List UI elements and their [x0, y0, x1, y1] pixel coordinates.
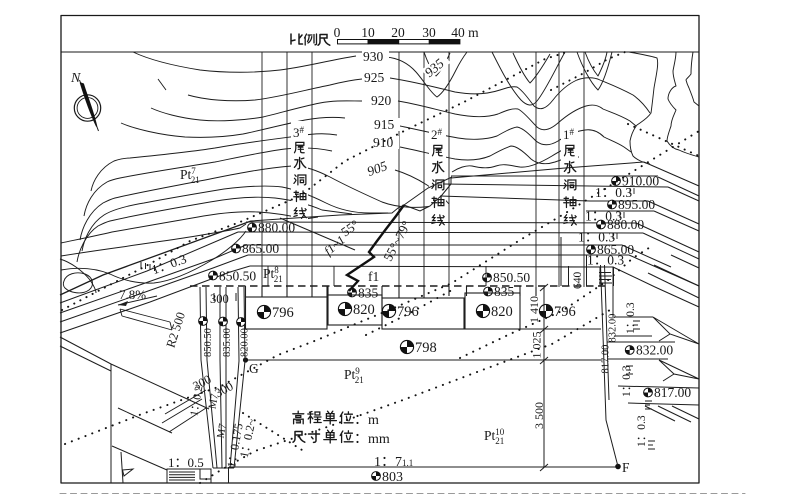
svg-text:20: 20 — [391, 25, 405, 40]
svg-text:798: 798 — [415, 340, 437, 356]
svg-text:895.00: 895.00 — [618, 197, 655, 212]
svg-text:640: 640 — [572, 272, 584, 290]
svg-text:832.00: 832.00 — [636, 343, 673, 358]
svg-text:850.50: 850.50 — [203, 328, 214, 357]
svg-text:820: 820 — [491, 304, 513, 320]
svg-text:835: 835 — [494, 284, 515, 299]
svg-text:300: 300 — [210, 292, 229, 306]
svg-text:1：0.3: 1：0.3 — [636, 415, 648, 447]
svg-text:1 410: 1 410 — [527, 296, 541, 323]
svg-text:920: 920 — [371, 93, 392, 108]
svg-text:835.00: 835.00 — [222, 328, 233, 357]
svg-text:3 500: 3 500 — [532, 402, 546, 429]
svg-text:1：71.1: 1：71.1 — [374, 455, 413, 470]
svg-text:1：0.3: 1：0.3 — [621, 365, 633, 397]
svg-text:1 025: 1 025 — [530, 332, 544, 359]
svg-text:：m: ：m — [354, 413, 379, 428]
svg-text:930: 930 — [363, 49, 384, 64]
svg-text:817.00: 817.00 — [654, 385, 691, 400]
svg-text:796: 796 — [554, 304, 576, 320]
svg-text:N: N — [70, 71, 81, 86]
svg-text:30: 30 — [422, 25, 436, 40]
svg-text:820: 820 — [353, 302, 375, 318]
svg-text:915: 915 — [374, 117, 395, 132]
svg-text:0: 0 — [334, 25, 341, 40]
svg-text:10: 10 — [361, 25, 375, 40]
svg-text:925: 925 — [364, 70, 385, 85]
svg-text:850.50: 850.50 — [219, 269, 256, 284]
svg-text:820.00: 820.00 — [240, 328, 251, 357]
svg-text:1：0.3: 1：0.3 — [587, 253, 624, 268]
svg-text:796: 796 — [272, 305, 294, 321]
svg-text:F: F — [622, 460, 630, 475]
svg-text:817.00: 817.00 — [601, 345, 612, 374]
svg-text:1：0.5: 1：0.5 — [168, 455, 204, 470]
svg-text:803: 803 — [382, 470, 403, 485]
svg-text:f1: f1 — [368, 269, 379, 284]
svg-text:1：0.3: 1：0.3 — [625, 302, 637, 334]
svg-text:40 m: 40 m — [451, 25, 479, 40]
svg-text:832.00: 832.00 — [608, 314, 619, 343]
svg-text:：mm: ：mm — [354, 432, 390, 447]
svg-text:796: 796 — [397, 304, 419, 320]
svg-text:835: 835 — [358, 286, 379, 301]
svg-text:865.00: 865.00 — [242, 241, 279, 256]
svg-text:850.50: 850.50 — [493, 270, 530, 285]
